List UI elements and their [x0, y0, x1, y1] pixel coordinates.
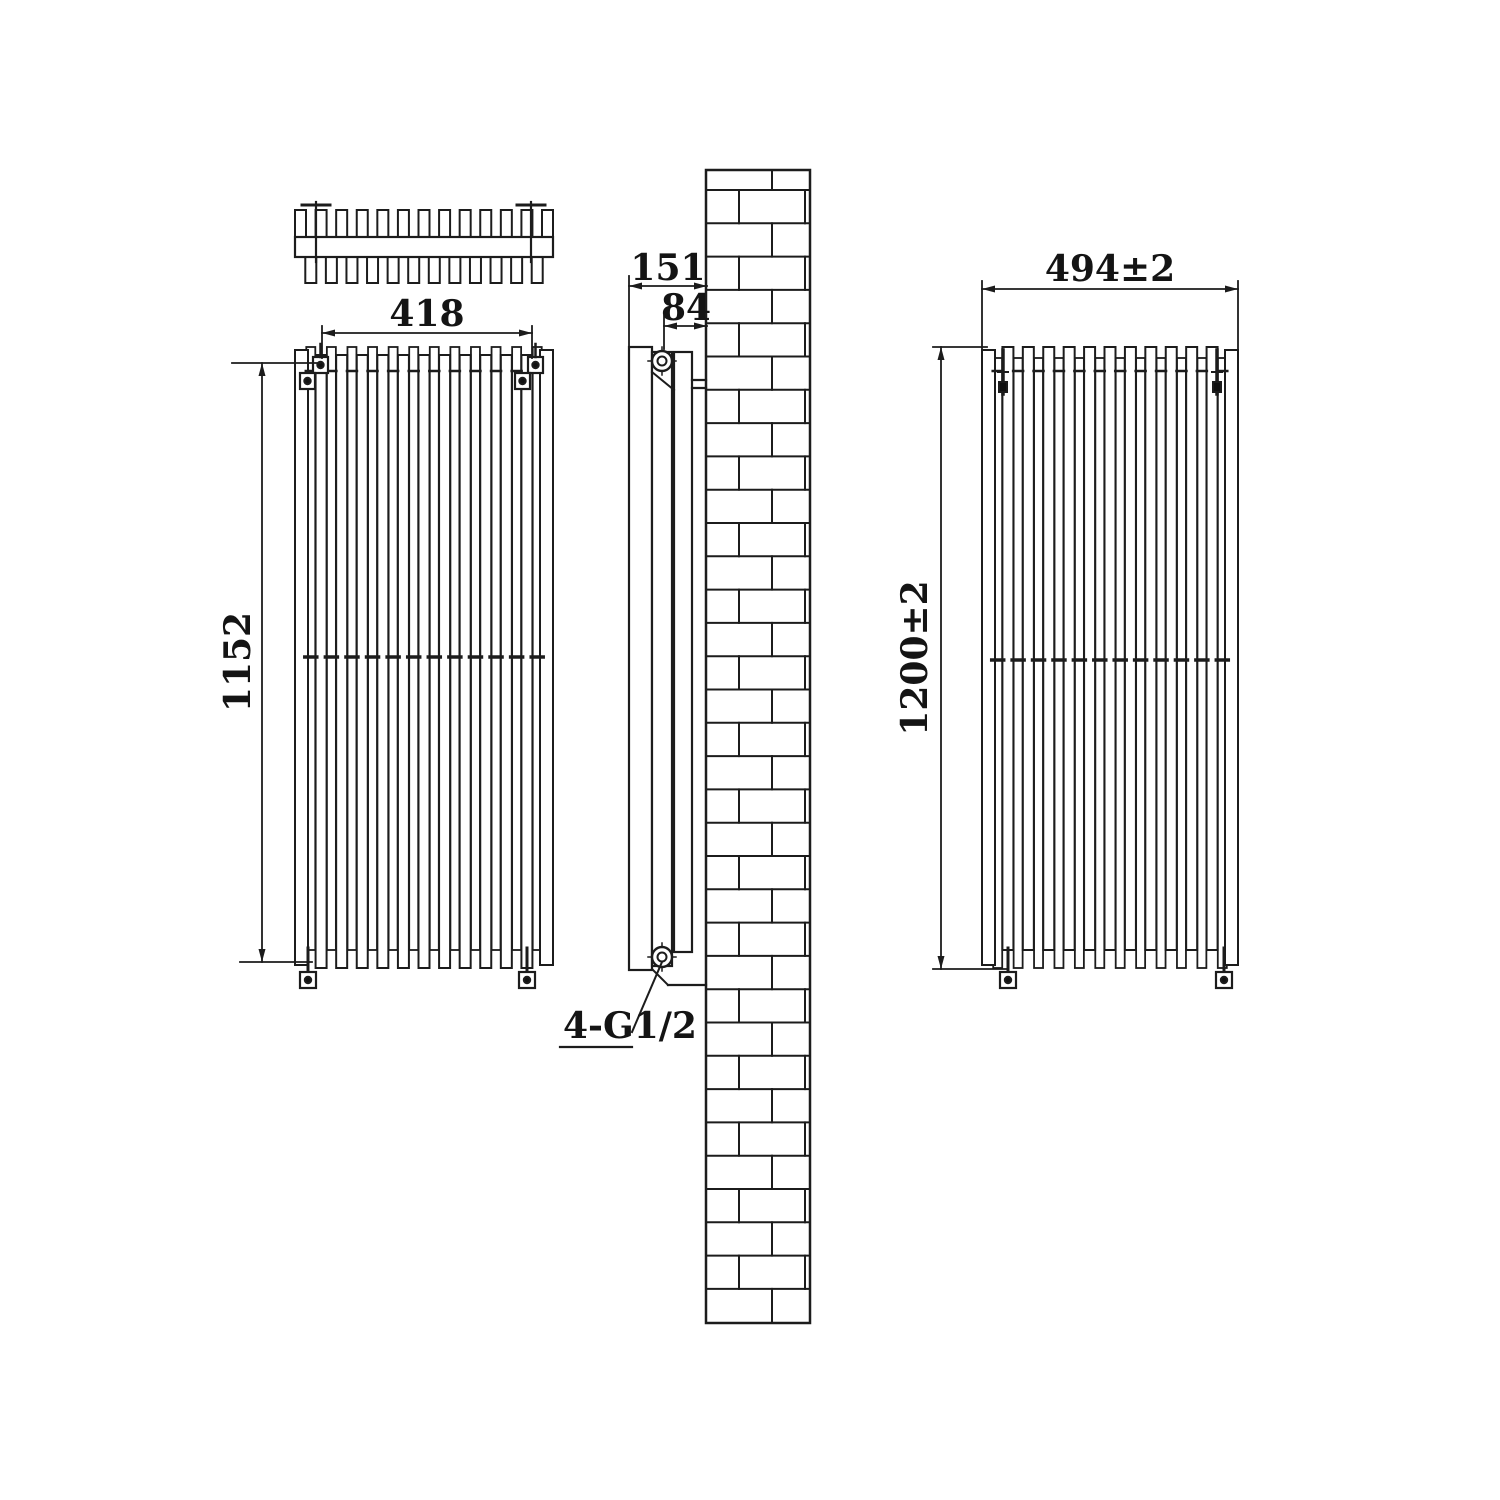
plan-tube-front-row — [460, 210, 471, 238]
front-tube — [1105, 347, 1116, 950]
plan-tube-front-row — [542, 210, 553, 238]
plan-tube-back-row — [326, 256, 337, 283]
dim-label-front-height: 1152 — [217, 612, 259, 712]
back-tube — [512, 347, 521, 950]
front-tube — [501, 355, 512, 968]
plan-tube-front-row — [295, 210, 306, 238]
front-tube — [316, 355, 327, 968]
plan-tube-back-row — [367, 256, 378, 283]
back-tube — [347, 347, 356, 950]
side-front-tube-column — [629, 347, 652, 970]
bracket-hole — [532, 362, 538, 368]
front-tube — [1064, 347, 1075, 950]
back-tube — [450, 347, 459, 950]
front-tube — [1023, 347, 1034, 950]
front-tube — [439, 355, 450, 968]
dimension-arrowhead — [259, 949, 266, 962]
dimension-arrowhead — [322, 330, 335, 337]
dimension-arrowhead — [982, 286, 995, 293]
plan-tube-back-row — [388, 256, 399, 283]
front-tube — [357, 355, 368, 968]
side-bottom-strut — [652, 969, 668, 985]
back-tube — [1034, 358, 1043, 968]
plan-view — [295, 202, 553, 283]
dimension-arrowhead — [938, 347, 945, 360]
plan-tube-back-row — [491, 256, 502, 283]
plan-manifold — [295, 237, 553, 257]
plan-tube-back-row — [511, 256, 522, 283]
dim-label-depth: 151 — [630, 247, 705, 289]
front-tube — [419, 355, 430, 968]
back-tube — [471, 347, 480, 950]
plan-tube-back-row — [408, 256, 419, 283]
dimension-arrowhead — [1225, 286, 1238, 293]
back-tube — [430, 347, 439, 950]
bracket-hole — [1005, 977, 1011, 983]
side-back-tube-column — [674, 352, 692, 952]
radiator-technical-drawing: 418 1152 151 84 4-G1/2 494±2 1200±2 — [0, 0, 1500, 1500]
back-tube — [1197, 358, 1206, 968]
back-tube — [1095, 358, 1104, 968]
back-tube — [1116, 358, 1125, 968]
wall-outline — [706, 170, 810, 1323]
front-tube — [1207, 347, 1218, 950]
side-manifold — [652, 352, 672, 966]
dim-label-overall-height: 1200±2 — [894, 580, 936, 735]
bracket-hole — [524, 977, 530, 983]
plan-tube-back-row — [449, 256, 460, 283]
front-tube — [1043, 347, 1054, 950]
front-tube — [1084, 347, 1095, 950]
plan-tube-front-row — [316, 210, 327, 238]
back-tube — [1075, 358, 1084, 968]
front-tube — [521, 355, 532, 968]
end-plate — [982, 350, 995, 965]
back-tube — [368, 347, 377, 950]
plan-tube-back-row — [346, 256, 357, 283]
back-tube — [389, 347, 398, 950]
drawing-sheet: 418 1152 151 84 4-G1/2 494±2 1200±2 — [0, 0, 1500, 1500]
dim-label-connections: 4-G1/2 — [563, 1005, 697, 1047]
plan-tube-front-row — [336, 210, 347, 238]
front-tube — [1166, 347, 1177, 950]
back-tube — [1014, 358, 1023, 968]
back-tube — [1054, 358, 1063, 968]
dimension-arrowhead — [519, 330, 532, 337]
plan-tube-front-row — [419, 210, 430, 238]
brick-wall-section — [706, 170, 810, 1323]
front-view-overall — [982, 347, 1238, 988]
front-tube — [336, 355, 347, 968]
valve-fitting — [652, 351, 672, 371]
plan-tube-back-row — [532, 256, 543, 283]
back-tube — [409, 347, 418, 950]
bracket-clip — [1213, 382, 1221, 392]
plan-tube-front-row — [439, 210, 450, 238]
side-view-wall-mounted — [629, 347, 706, 985]
plan-tube-back-row — [470, 256, 481, 283]
back-tube — [327, 347, 336, 950]
plan-tube-back-row — [305, 256, 316, 283]
back-tube — [1177, 358, 1186, 968]
end-plate — [1225, 350, 1238, 965]
front-tube — [480, 355, 491, 968]
front-tube — [398, 355, 409, 968]
plan-tube-front-row — [357, 210, 368, 238]
front-tube — [460, 355, 471, 968]
front-tube — [377, 355, 388, 968]
front-tube — [1145, 347, 1156, 950]
dim-label-overall-width: 494±2 — [1045, 248, 1175, 290]
plan-tube-front-row — [501, 210, 512, 238]
front-tube — [1125, 347, 1136, 950]
bracket-hole — [519, 378, 525, 384]
dimension-arrowhead — [938, 956, 945, 969]
plan-tube-front-row — [480, 210, 491, 238]
back-tube — [1157, 358, 1166, 968]
bracket-hole — [305, 977, 311, 983]
front-view-dimensioned — [295, 344, 553, 988]
back-tube — [492, 347, 501, 950]
dim-label-inlet-offset: 84 — [661, 287, 711, 329]
bracket-hole — [304, 378, 310, 384]
dim-label-plan-width: 418 — [389, 293, 464, 335]
front-tube — [1186, 347, 1197, 950]
bracket-clip — [999, 382, 1007, 392]
front-tube — [1002, 347, 1013, 950]
dimension-arrowhead — [259, 363, 266, 376]
plan-tube-front-row — [377, 210, 388, 238]
plan-tube-front-row — [398, 210, 409, 238]
plan-tube-back-row — [429, 256, 440, 283]
back-tube — [1136, 358, 1145, 968]
bracket-hole — [1221, 977, 1227, 983]
